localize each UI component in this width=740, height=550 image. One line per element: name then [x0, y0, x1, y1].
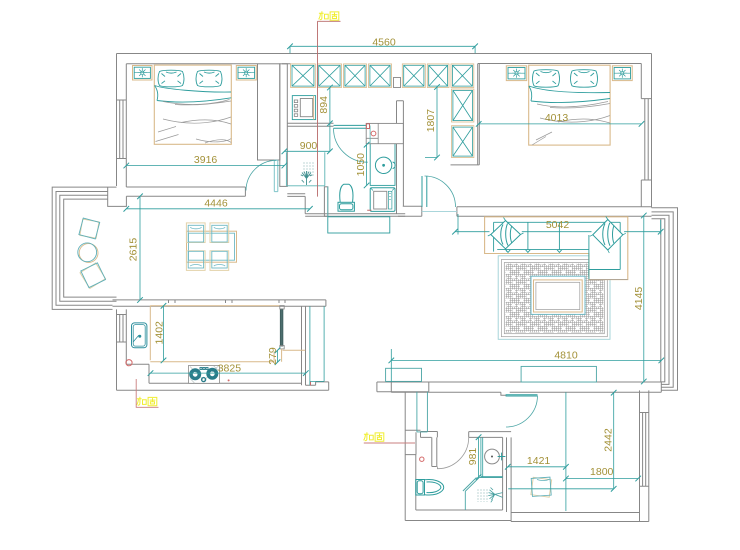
svg-text:894: 894 — [318, 96, 330, 114]
svg-text:4145: 4145 — [633, 287, 645, 311]
svg-text:1050: 1050 — [355, 153, 367, 177]
svg-text:279: 279 — [267, 347, 279, 365]
svg-text:1421: 1421 — [527, 455, 551, 467]
svg-text:3916: 3916 — [194, 154, 218, 166]
svg-text:981: 981 — [467, 448, 479, 466]
svg-text:4013: 4013 — [545, 112, 569, 124]
svg-text:2442: 2442 — [602, 428, 614, 452]
svg-text:4446: 4446 — [204, 198, 228, 210]
svg-text:1800: 1800 — [590, 466, 614, 478]
svg-text:1807: 1807 — [425, 109, 437, 133]
svg-text:4560: 4560 — [372, 36, 396, 48]
svg-text:4810: 4810 — [554, 349, 578, 361]
svg-text:5042: 5042 — [546, 219, 570, 231]
svg-text:2615: 2615 — [128, 238, 140, 262]
svg-text:1402: 1402 — [153, 321, 165, 345]
svg-text:3825: 3825 — [218, 362, 242, 374]
svg-text:900: 900 — [300, 140, 318, 152]
